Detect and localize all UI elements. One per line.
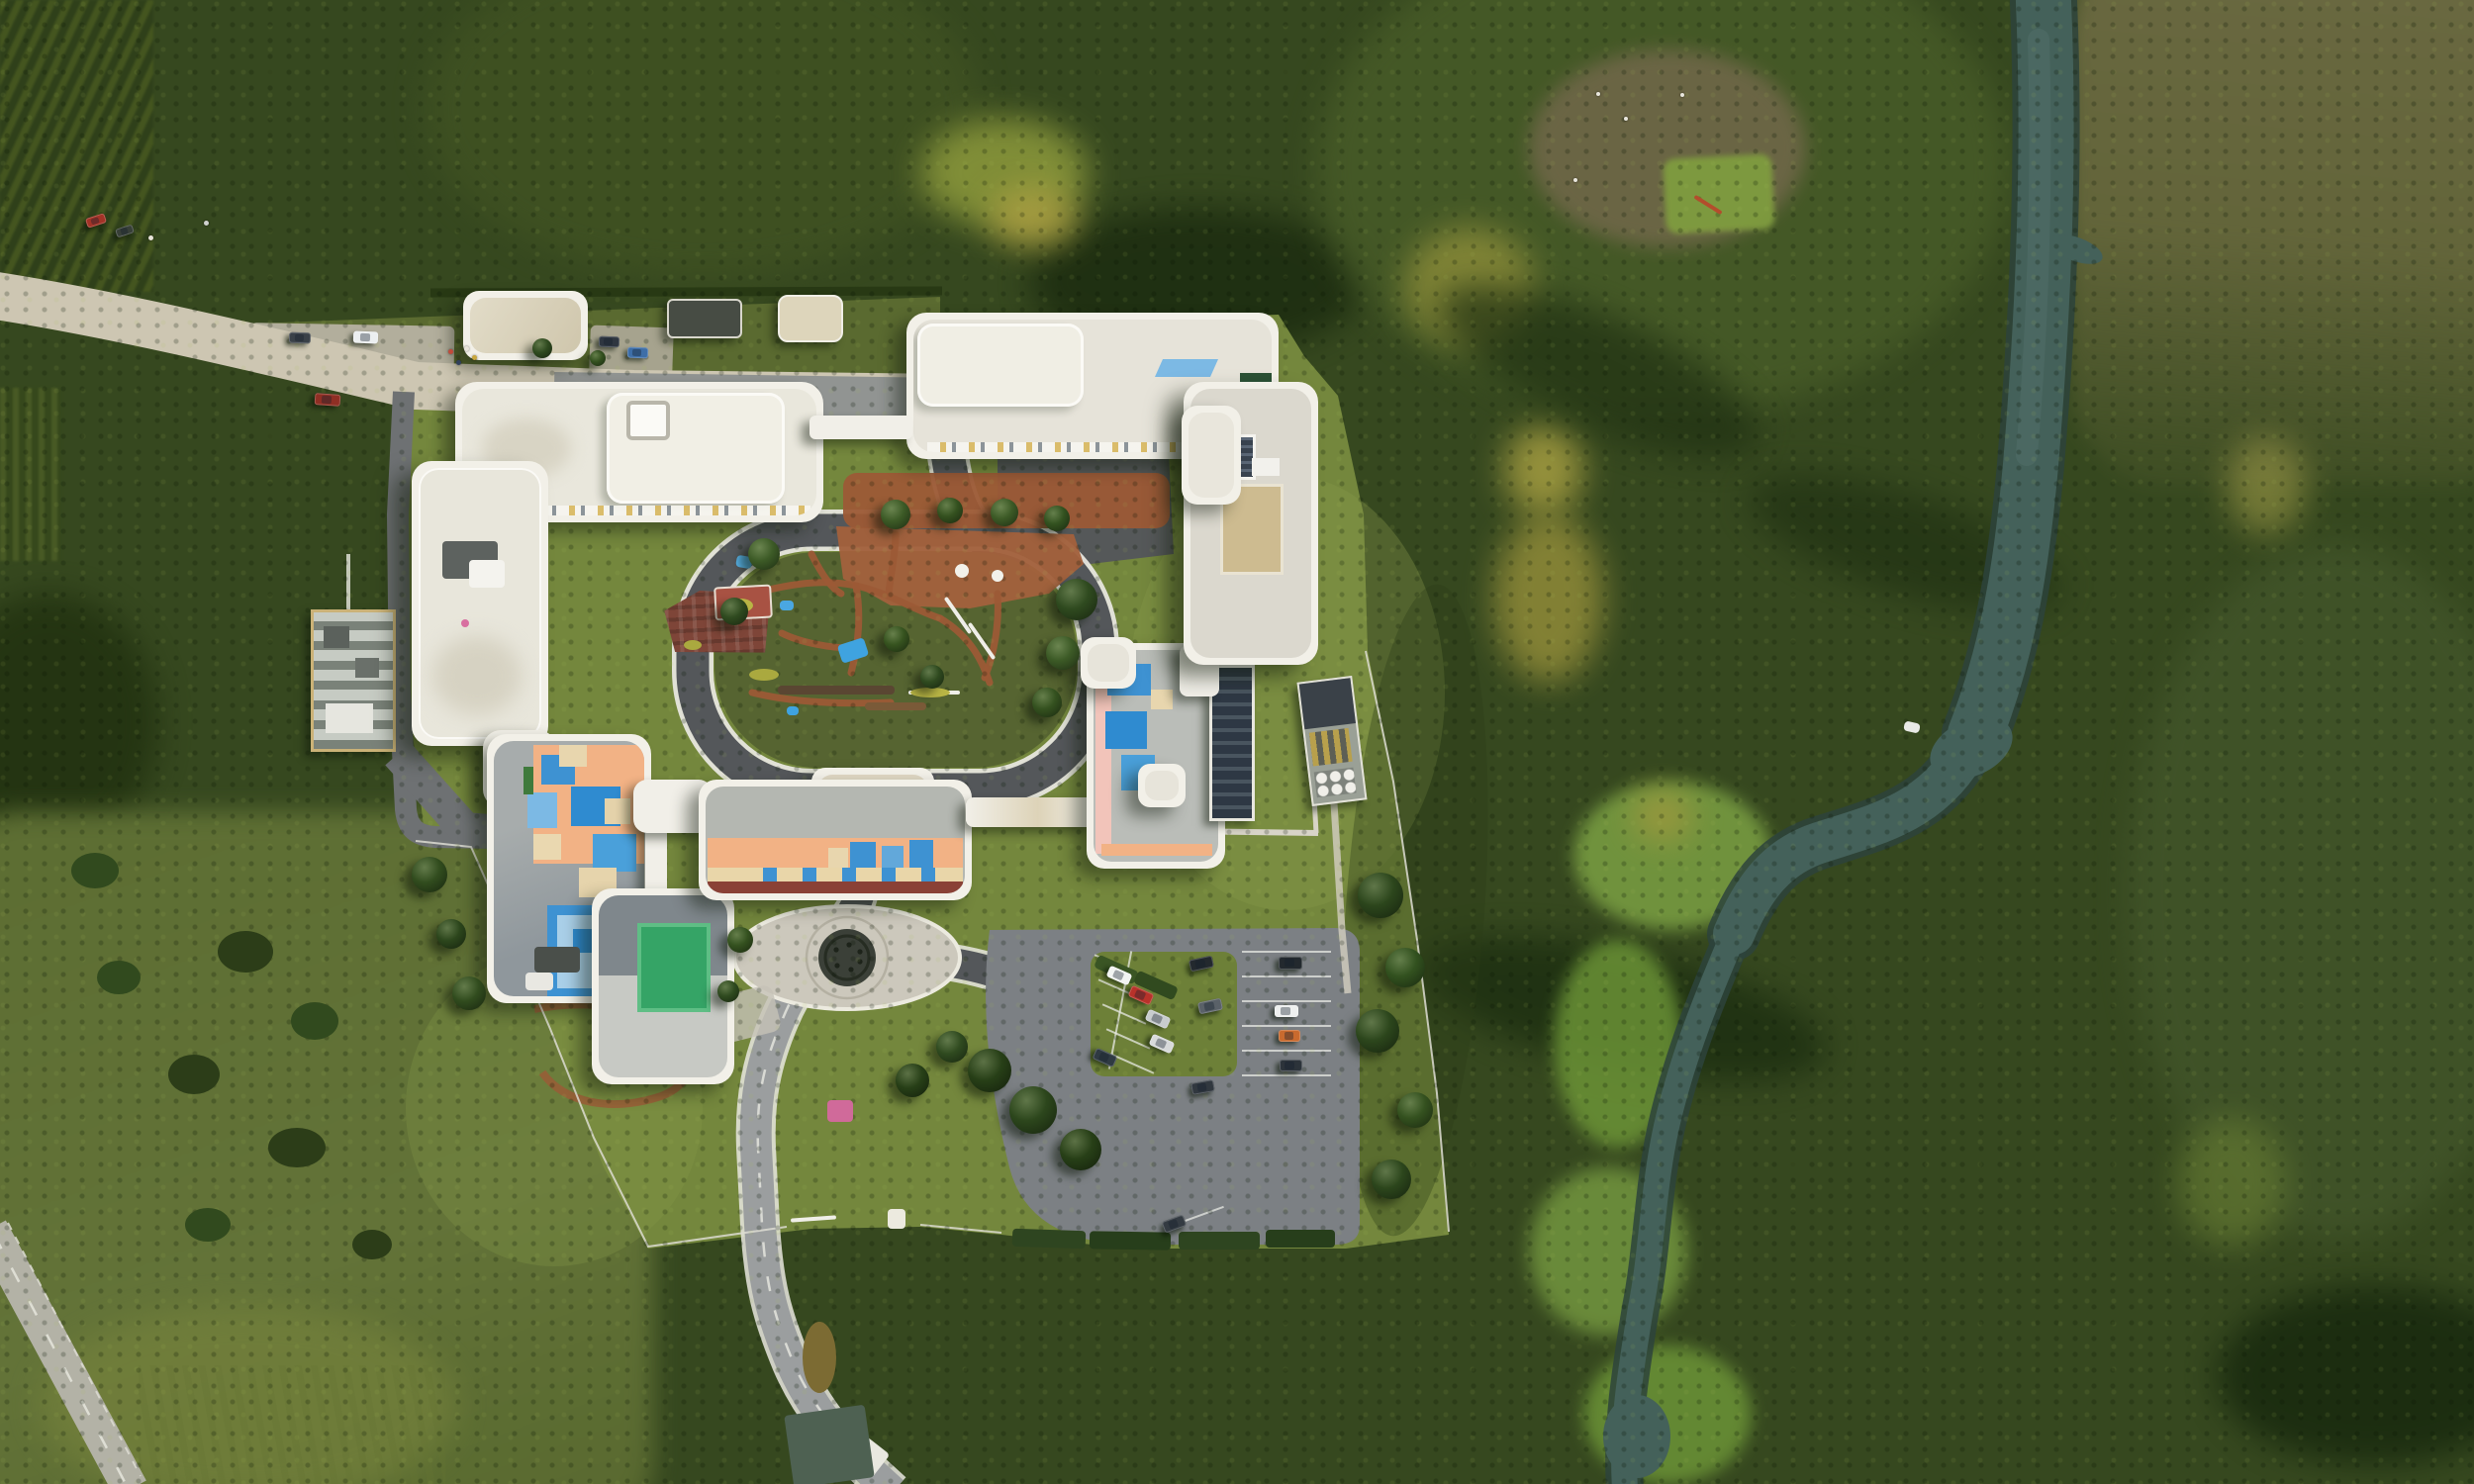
vignette bbox=[0, 0, 2474, 1484]
aerial-photo-stage bbox=[0, 0, 2474, 1484]
